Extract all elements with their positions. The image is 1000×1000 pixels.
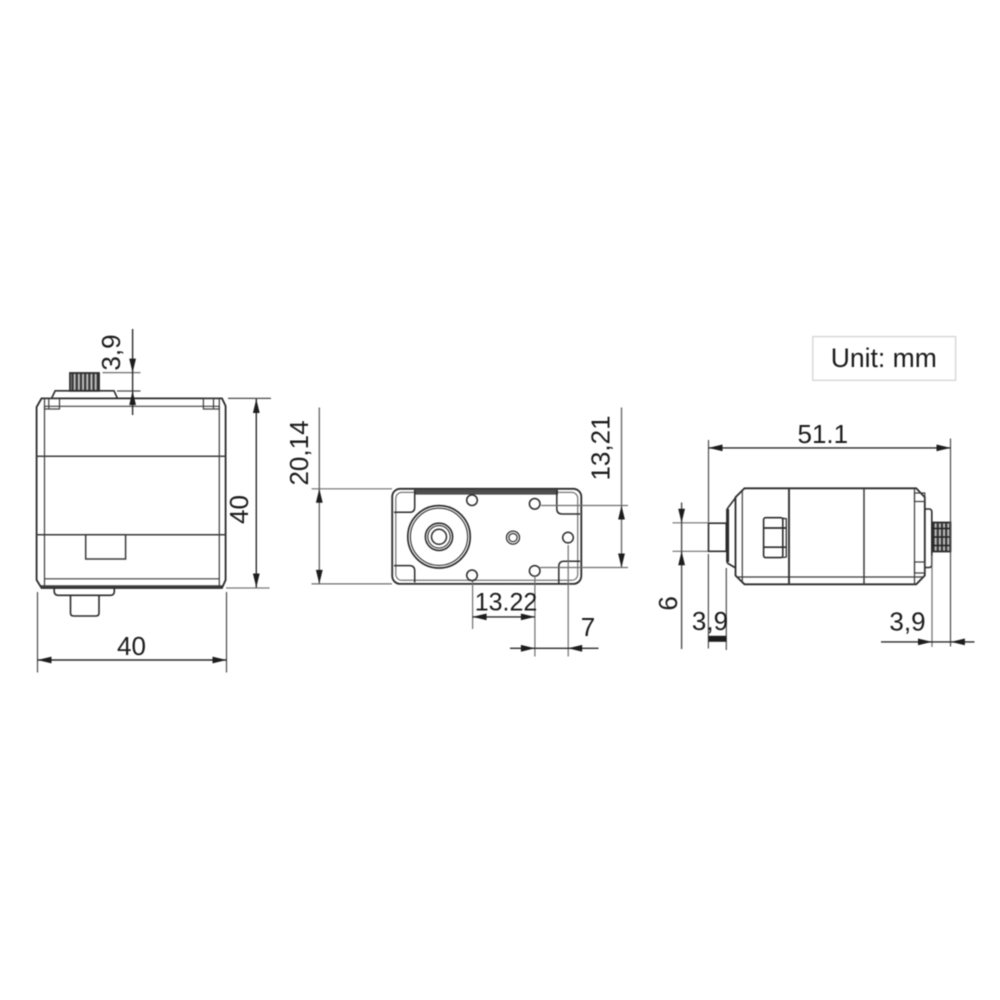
svg-text:20,14: 20,14 — [284, 420, 314, 485]
svg-text:3,9: 3,9 — [96, 334, 126, 370]
svg-text:40: 40 — [117, 631, 146, 661]
svg-text:3,9: 3,9 — [889, 607, 925, 637]
svg-text:13.22: 13.22 — [475, 589, 538, 617]
svg-text:3,9: 3,9 — [692, 606, 728, 636]
svg-text:13,21: 13,21 — [586, 415, 616, 480]
svg-text:6: 6 — [653, 596, 683, 610]
svg-text:40: 40 — [224, 495, 254, 524]
svg-text:7: 7 — [581, 612, 595, 642]
svg-text:51.1: 51.1 — [797, 419, 848, 449]
svg-text:Unit: mm: Unit: mm — [831, 343, 937, 373]
